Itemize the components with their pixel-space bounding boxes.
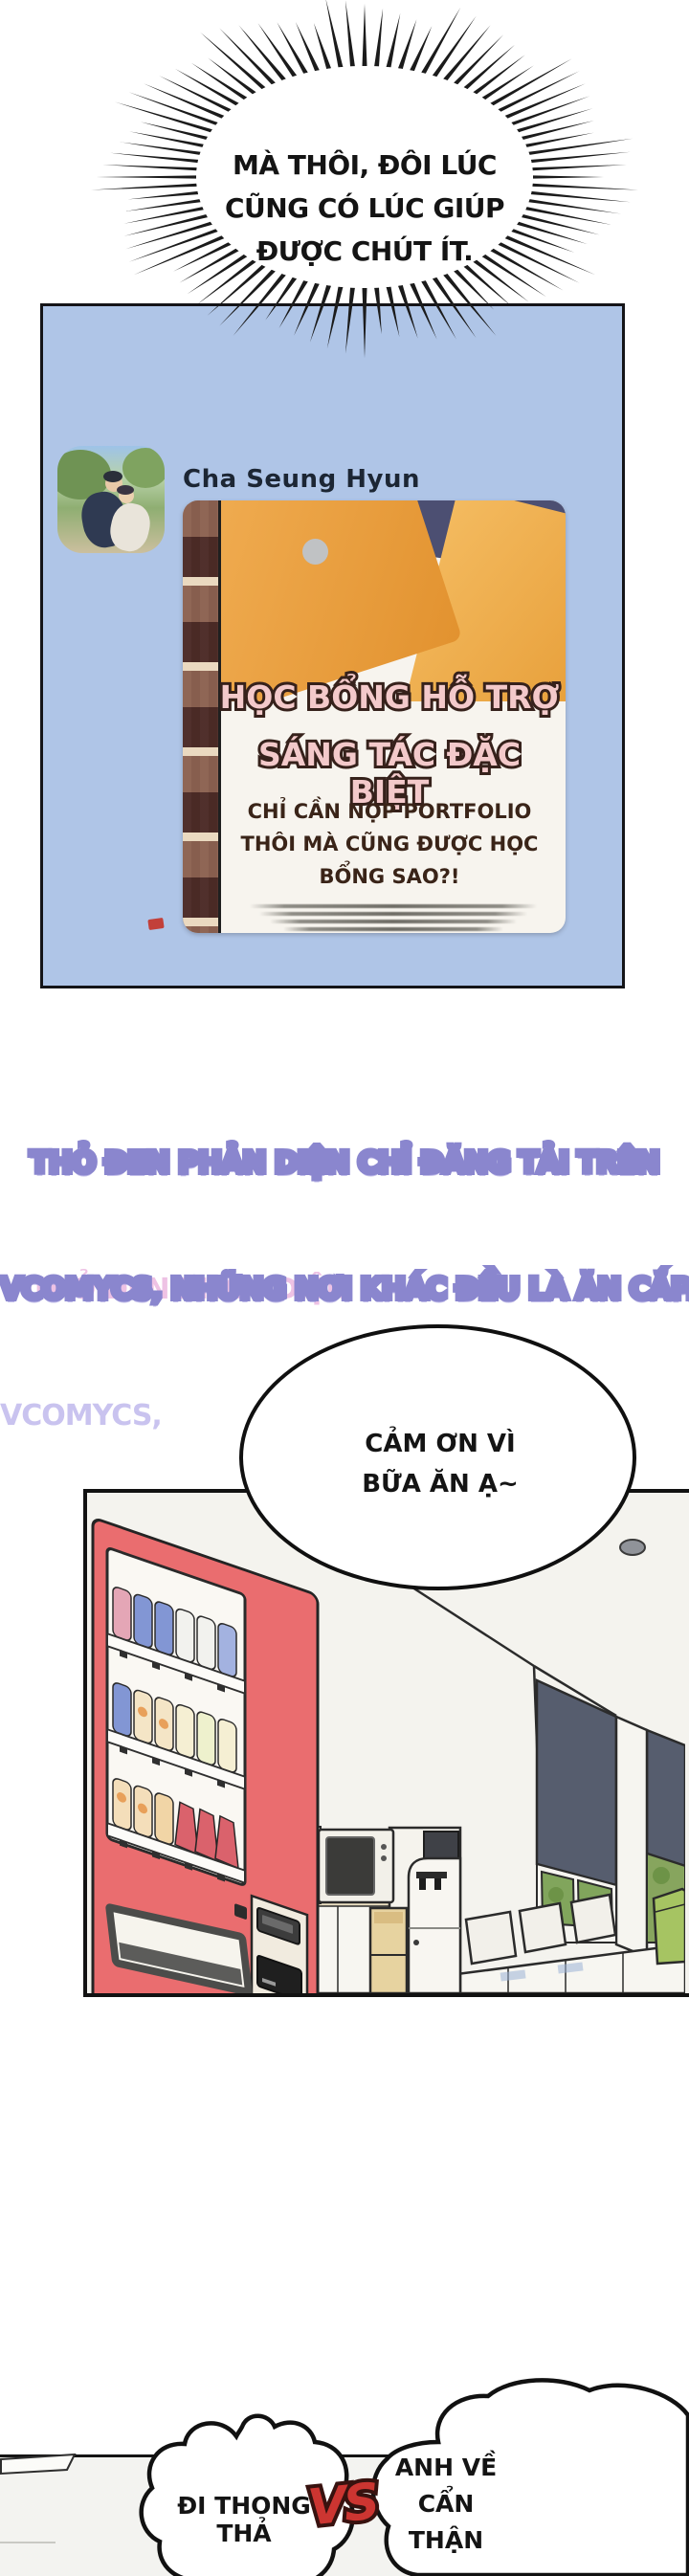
microwave bbox=[319, 1830, 393, 1902]
brick-strip bbox=[183, 500, 221, 933]
profile-name: Cha Seung Hyun bbox=[183, 465, 420, 494]
chat-screenshot-panel: Cha Seung Hyun HỌC BỔNG HỖ TRỢ HỌC BỔNG … bbox=[40, 303, 625, 988]
farewell-bubbles bbox=[0, 2354, 689, 2576]
poster-red-logo bbox=[147, 918, 164, 930]
wall-pillar bbox=[616, 1717, 647, 1957]
poster-title-line1: HỌC BỔNG HỖ TRỢ HỌC BỔNG HỖ TRỢ bbox=[217, 678, 562, 716]
avatar-person-light-hair bbox=[117, 485, 134, 495]
comic-page: Cha Seung Hyun HỌC BỔNG HỖ TRỢ HỌC BỔNG … bbox=[0, 0, 689, 2576]
window-shade-right bbox=[647, 1730, 685, 1866]
microwave-door bbox=[326, 1837, 374, 1895]
avatar-person-dark-hair bbox=[103, 471, 122, 482]
cubby-shelf bbox=[370, 1908, 407, 1993]
poster-pin-hole bbox=[302, 539, 328, 565]
poster-subtitle-line3: BỔNG SAO?! bbox=[217, 865, 562, 888]
recycle-lid-1 bbox=[466, 1912, 516, 1964]
poster-artwork bbox=[221, 500, 566, 701]
farewell-right-text: ANH VỀ CẨN THẬN bbox=[383, 2450, 509, 2559]
avatar-tree-right bbox=[122, 448, 165, 488]
vending-machine bbox=[93, 1518, 318, 1993]
watermark-line1: THỎ ĐEN PHẢN DIỆN CHỈ ĐĂNG TẢI TRÊN THỎ … bbox=[0, 1143, 689, 1185]
recycle-lid-2 bbox=[520, 1903, 566, 1952]
avatar bbox=[57, 446, 165, 553]
scholarship-poster: HỌC BỔNG HỖ TRỢ HỌC BỔNG HỖ TRỢ SÁNG TÁC… bbox=[183, 500, 566, 933]
poster-subtitle-line2: THÔI MÀ CŨNG ĐƯỢC HỌC bbox=[217, 833, 562, 855]
dispenser-tap-2 bbox=[434, 1878, 441, 1890]
green-bin bbox=[654, 1889, 685, 1964]
window-shade-left bbox=[537, 1680, 616, 1885]
burst-bubble-text: MÀ THÔI, ĐÔI LÚC CŨNG CÓ LÚC GIÚP ĐƯỢC C… bbox=[211, 144, 518, 273]
poster-fineprint bbox=[250, 900, 537, 933]
dispenser-tap-1 bbox=[419, 1878, 426, 1890]
poster-subtitle-line1: CHỈ CẦN NỘP PORTFOLIO bbox=[217, 800, 562, 823]
recycle-lid-3 bbox=[571, 1895, 615, 1943]
thanks-speech-text: CẢM ƠN VÌ BỮA ĂN Ạ~ bbox=[335, 1424, 545, 1504]
watermark-line2: VCOMYCS, NHỮNG NƠI KHÁC ĐỀU LÀ ĂN CẮP. V… bbox=[0, 1269, 689, 1311]
ceiling-light bbox=[620, 1540, 645, 1555]
vs-text: VS VS bbox=[301, 2473, 384, 2538]
water-dispenser bbox=[409, 1858, 460, 1993]
ceiling-corner-line bbox=[410, 1586, 534, 1666]
